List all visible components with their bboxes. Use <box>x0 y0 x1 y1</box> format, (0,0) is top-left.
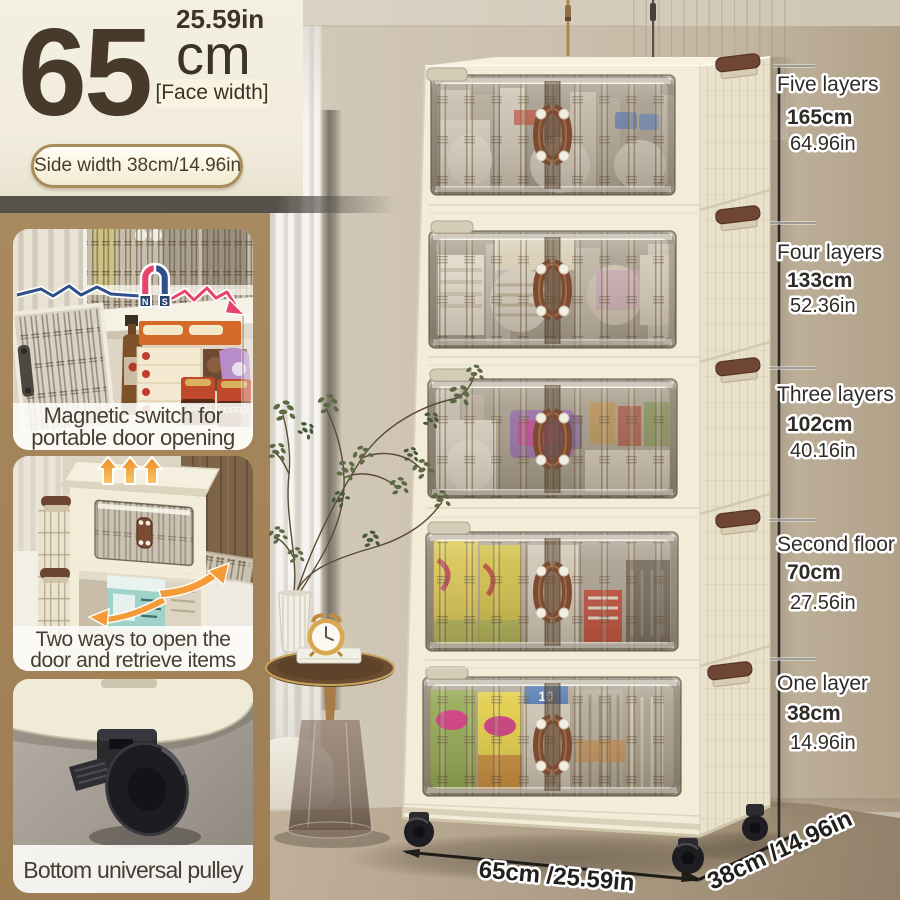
svg-text:133cm: 133cm <box>787 269 852 292</box>
svg-text:Five layers: Five layers <box>777 73 879 96</box>
svg-text:27.56in: 27.56in <box>790 592 856 614</box>
svg-text:14.96in: 14.96in <box>790 732 856 754</box>
svg-text:70cm: 70cm <box>787 561 841 584</box>
svg-text:40.16in: 40.16in <box>790 440 856 462</box>
svg-text:One layer: One layer <box>777 672 868 695</box>
svg-text:Four layers: Four layers <box>777 241 882 264</box>
svg-text:Second floor: Second floor <box>777 533 895 556</box>
svg-text:52.36in: 52.36in <box>790 295 856 317</box>
svg-text:64.96in: 64.96in <box>790 133 856 155</box>
svg-text:38cm: 38cm <box>787 702 841 725</box>
svg-text:165cm: 165cm <box>787 106 852 129</box>
svg-text:102cm: 102cm <box>787 413 852 436</box>
svg-text:Three layers: Three layers <box>777 383 894 406</box>
